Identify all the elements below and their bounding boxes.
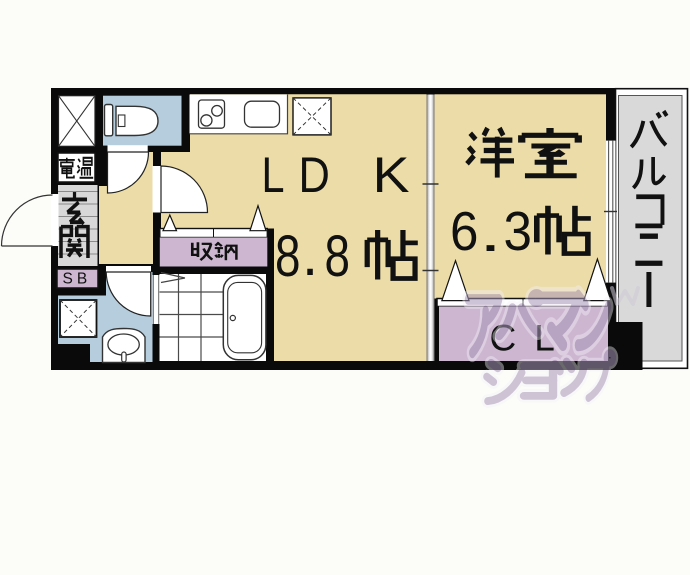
svg-text:6: 6 bbox=[450, 201, 478, 262]
svg-text:L: L bbox=[262, 146, 285, 203]
svg-text:8: 8 bbox=[275, 225, 300, 289]
svg-text:SB: SB bbox=[63, 271, 92, 288]
svg-text:3: 3 bbox=[504, 201, 532, 262]
svg-text:K: K bbox=[373, 147, 410, 203]
svg-text:.: . bbox=[302, 223, 318, 288]
svg-text:8: 8 bbox=[325, 225, 350, 289]
svg-text:.: . bbox=[479, 201, 502, 262]
svg-text:D: D bbox=[299, 146, 330, 203]
